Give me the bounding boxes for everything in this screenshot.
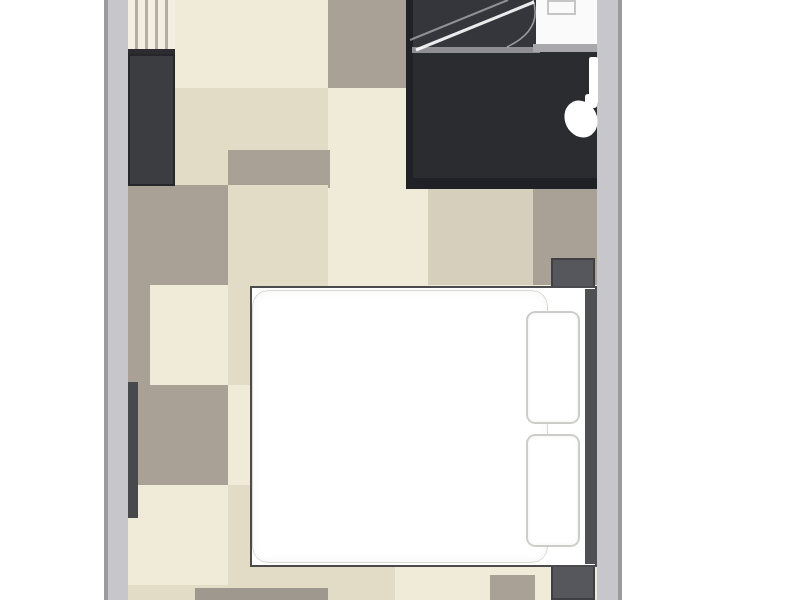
floor-tile-beige-below-bed <box>328 565 395 600</box>
right-wall-outer-edge <box>618 0 622 600</box>
sink-basin-outline <box>547 0 576 15</box>
bed-pillow-1 <box>526 311 580 424</box>
luggage-rack <box>128 0 175 53</box>
bathroom-left-wall <box>406 0 413 188</box>
floor-tile-taupe-r1c1 <box>228 150 330 188</box>
window-marker <box>128 382 138 518</box>
sink-counter-edge <box>533 44 597 52</box>
floor-tile-taupe-r4c0 <box>128 385 228 485</box>
floor-plan-scene <box>0 0 800 600</box>
floor-tile-beigegray-r2c3 <box>428 188 533 285</box>
bathroom-bottom-wall <box>406 178 597 189</box>
bed-headboard <box>585 289 597 564</box>
floor-gray-band-bottom <box>195 588 330 600</box>
bed-duvet <box>252 290 548 563</box>
bed-pillow-2 <box>526 434 580 547</box>
wardrobe <box>128 54 175 186</box>
floor-tile-beige-r1c1 <box>228 88 328 150</box>
shower-divider-line <box>412 47 540 53</box>
floor-tile-taupe-r2c0 <box>128 185 228 285</box>
nightstand-bottom <box>551 563 595 600</box>
floor-tile-beige-r2c1 <box>228 185 328 285</box>
floor-tile-taupe-sliver <box>128 285 150 385</box>
floor-plan-canvas <box>0 0 800 600</box>
floor-tile-taupe-below-bed <box>490 575 535 600</box>
left-wall-outer-edge <box>104 0 108 600</box>
shower-floor <box>412 0 540 52</box>
